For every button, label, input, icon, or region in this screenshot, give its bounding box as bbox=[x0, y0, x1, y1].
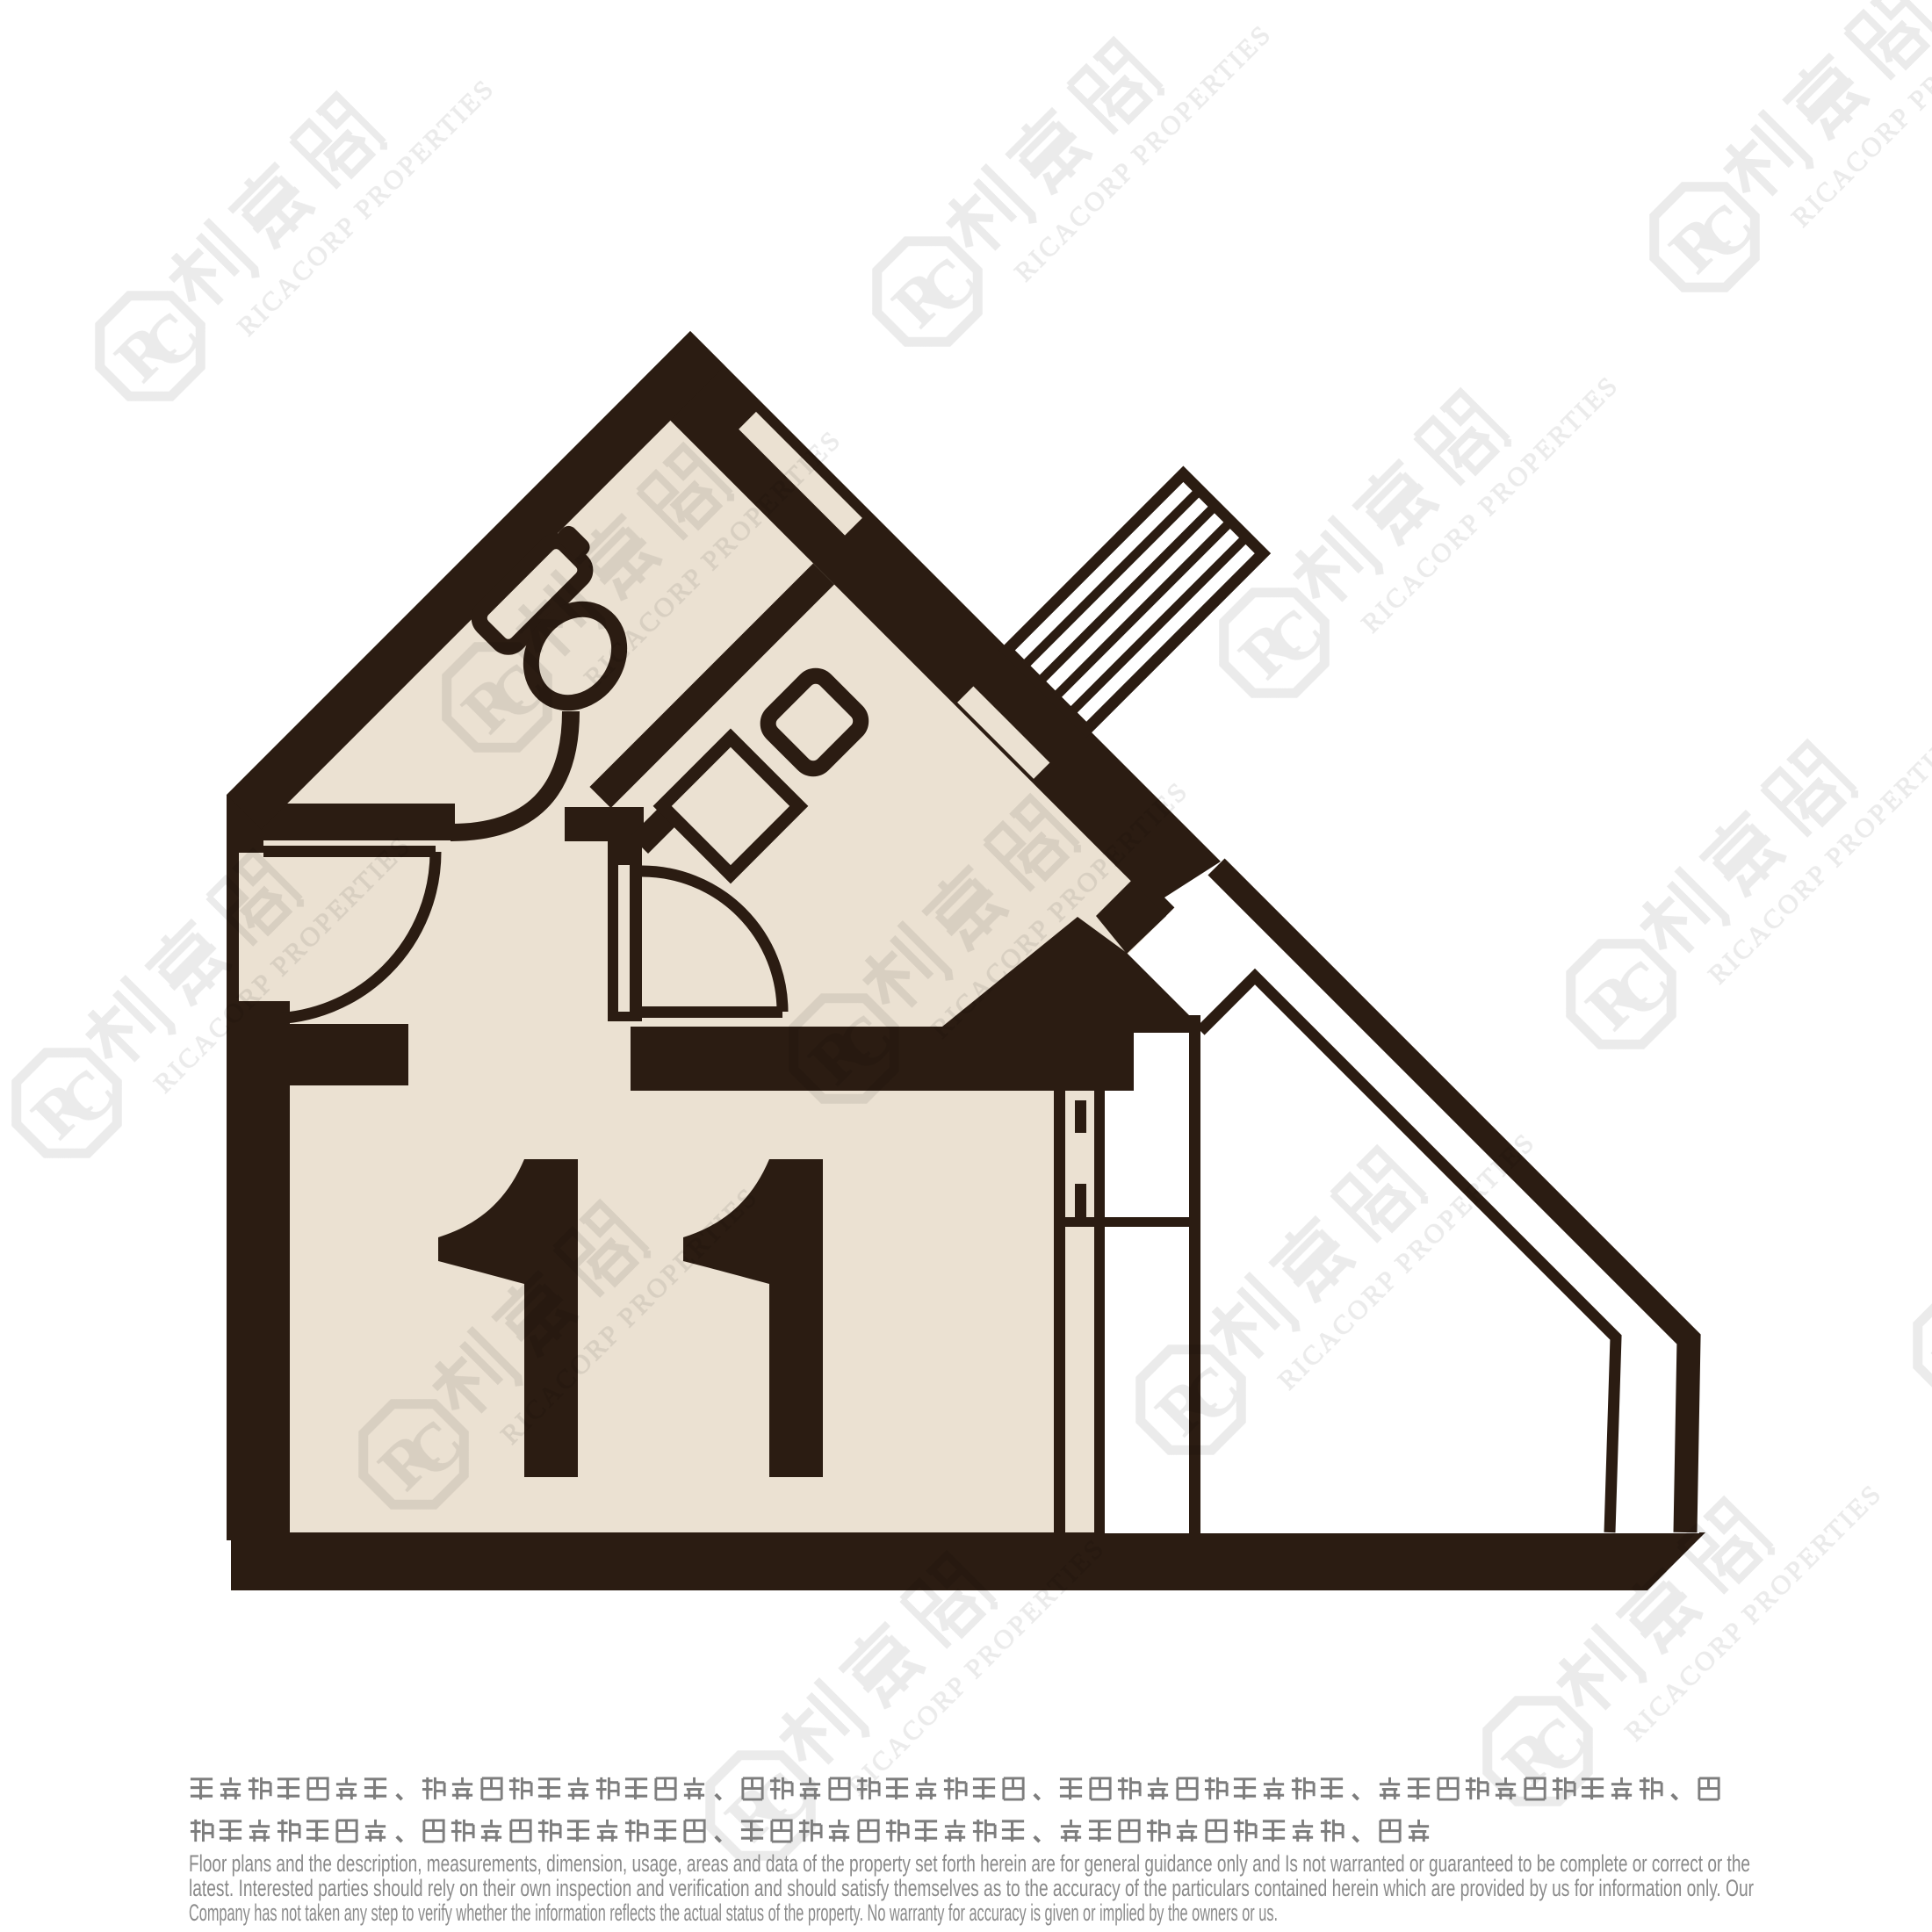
svg-text:Floor plans and the descriptio: Floor plans and the description, measure… bbox=[189, 1850, 1750, 1877]
svg-text:Company has not taken any step: Company has not taken any step to verify… bbox=[189, 1900, 1278, 1926]
svg-text:latest. Interested parties sho: latest. Interested parties should rely o… bbox=[189, 1875, 1754, 1901]
